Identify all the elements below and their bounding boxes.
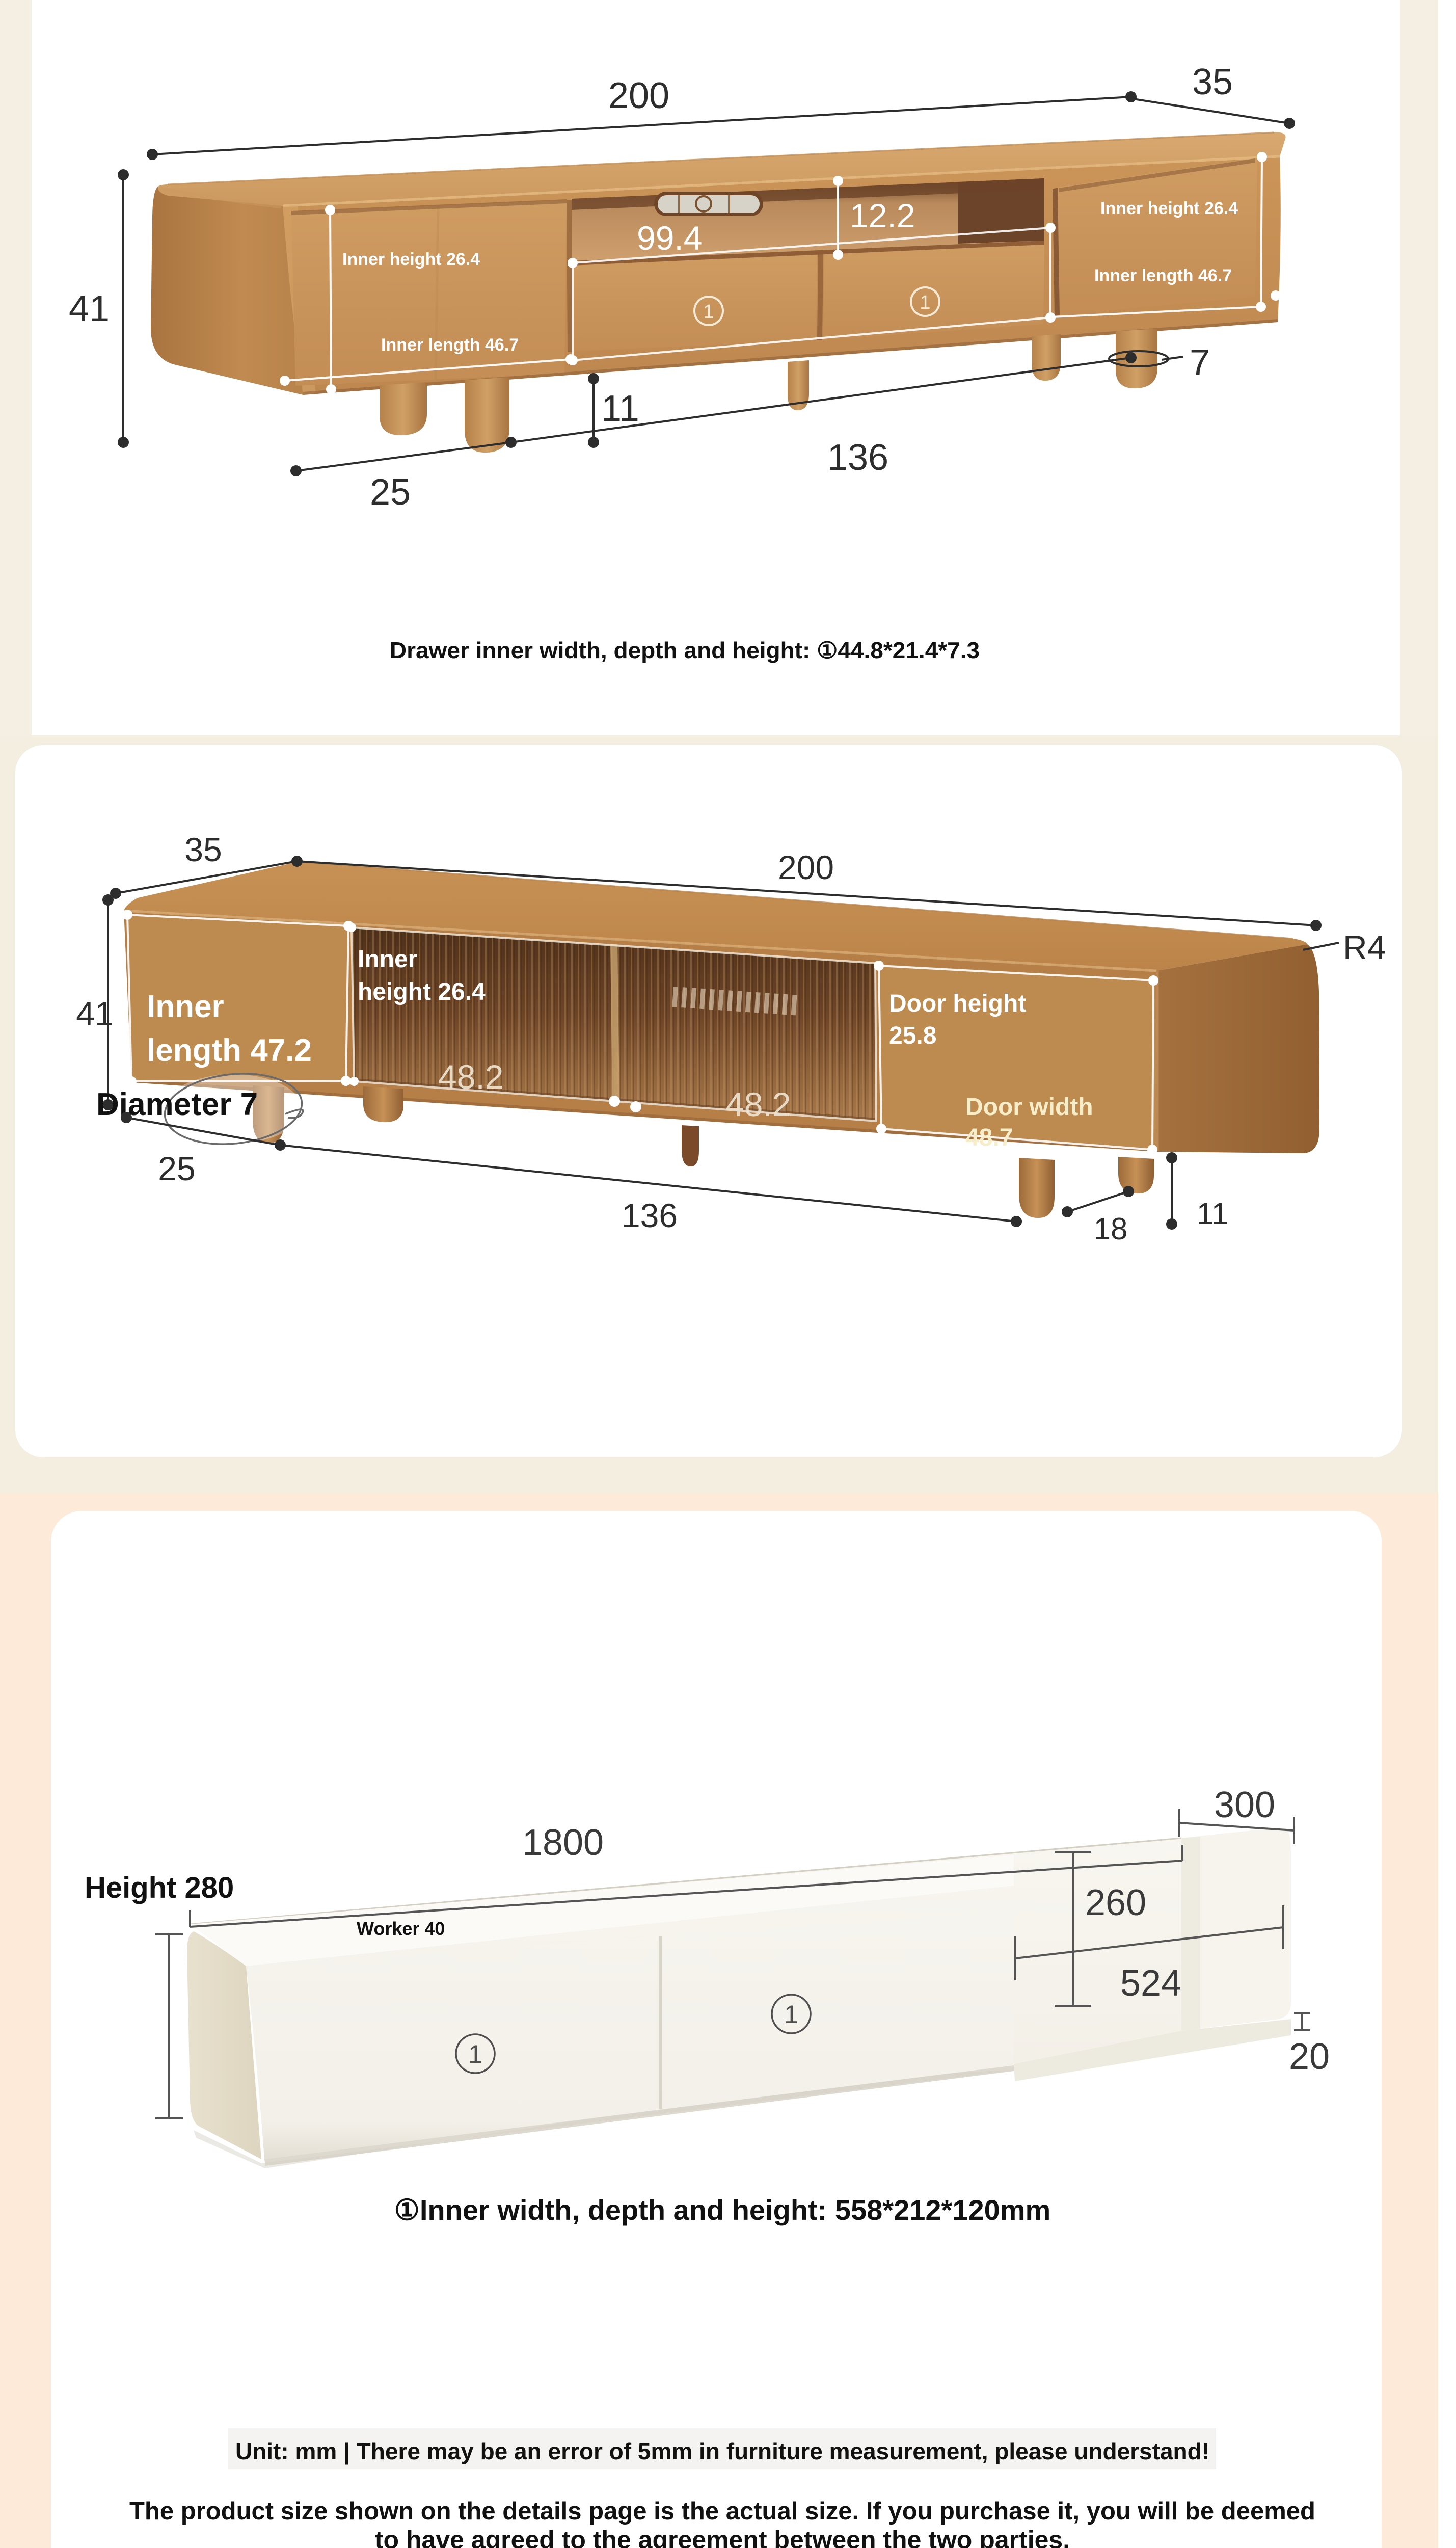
svg-text:R4: R4 — [1343, 928, 1386, 966]
svg-text:Inner: Inner — [147, 989, 224, 1024]
svg-text:48.2: 48.2 — [725, 1085, 791, 1123]
svg-text:The product size shown on the: The product size shown on the details pa… — [129, 2498, 1315, 2525]
svg-text:99.4: 99.4 — [637, 219, 702, 257]
svg-text:136: 136 — [827, 437, 888, 478]
svg-text:260: 260 — [1085, 1882, 1146, 1923]
svg-text:Height 280: Height 280 — [85, 1871, 234, 1904]
svg-text:48.2: 48.2 — [438, 1058, 503, 1096]
svg-text:Drawer inner width, depth and: Drawer inner width, depth and height: ①4… — [390, 637, 980, 663]
svg-text:length 47.2: length 47.2 — [147, 1033, 312, 1068]
svg-text:300: 300 — [1214, 1785, 1275, 1825]
svg-text:136: 136 — [622, 1197, 678, 1234]
svg-text:height 26.4: height 26.4 — [358, 978, 486, 1005]
svg-text:Door width: Door width — [965, 1094, 1093, 1121]
svg-text:1: 1 — [784, 2000, 798, 2029]
svg-text:7: 7 — [1190, 342, 1210, 383]
svg-text:48.7: 48.7 — [965, 1124, 1013, 1151]
svg-text:1: 1 — [468, 2040, 482, 2068]
svg-text:41: 41 — [69, 288, 110, 329]
svg-text:25.8: 25.8 — [889, 1022, 936, 1049]
svg-text:Inner: Inner — [358, 946, 417, 973]
svg-text:Worker 40: Worker 40 — [357, 1918, 445, 1939]
svg-text:Diameter 7: Diameter 7 — [96, 1087, 258, 1122]
svg-text:524: 524 — [1120, 1963, 1181, 2004]
svg-text:18: 18 — [1094, 1212, 1128, 1246]
svg-text:to have agreed to the agreemen: to have agreed to the agreement between … — [375, 2526, 1070, 2548]
svg-text:11: 11 — [601, 388, 639, 429]
svg-text:Inner height 26.4: Inner height 26.4 — [1100, 199, 1238, 218]
svg-text:Inner length 46.7: Inner length 46.7 — [1094, 266, 1232, 285]
svg-text:①Inner width, depth and height: ①Inner width, depth and height: 558*212*… — [394, 2194, 1051, 2226]
svg-text:20: 20 — [1289, 2036, 1330, 2077]
svg-text:Door height: Door height — [889, 990, 1026, 1017]
svg-text:11: 11 — [1197, 1197, 1228, 1231]
svg-text:Inner length 46.7: Inner length 46.7 — [381, 335, 519, 355]
svg-text:1: 1 — [703, 301, 714, 323]
svg-text:1800: 1800 — [522, 1822, 604, 1863]
svg-text:Inner height 26.4: Inner height 26.4 — [342, 250, 480, 269]
svg-text:25: 25 — [370, 472, 411, 513]
svg-text:200: 200 — [778, 848, 834, 886]
svg-text:35: 35 — [1192, 62, 1233, 102]
svg-text:25: 25 — [158, 1150, 195, 1187]
svg-text:41: 41 — [76, 995, 113, 1032]
svg-text:12.2: 12.2 — [850, 197, 915, 234]
svg-text:200: 200 — [608, 75, 669, 116]
svg-text:1: 1 — [920, 292, 930, 313]
svg-text:35: 35 — [184, 831, 222, 868]
svg-text:Unit: mm | There may be an err: Unit: mm | There may be an error of 5mm … — [235, 2438, 1209, 2464]
